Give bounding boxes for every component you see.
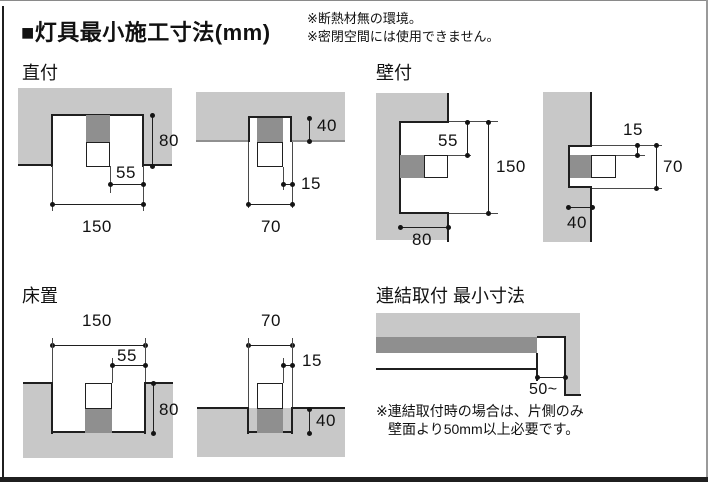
fixture-diffuser-bottom-outline (376, 368, 537, 370)
catalog-dimension-panel: ■灯具最小施工寸法(mm) ※断熱材無の環境。 ※密閉空間には使用できません。 … (0, 0, 708, 482)
ceiling-slab (376, 313, 580, 337)
side-wall (565, 337, 580, 395)
wall-face-outline (564, 336, 566, 396)
wall-bottom-outline (564, 394, 581, 396)
ceiling-edge-outline (537, 336, 565, 338)
dim-label-clearance: 50~ (529, 382, 558, 398)
linked-mount-note-1: ※連結取付時の場合は、片側のみ (376, 402, 584, 420)
dim-dot (563, 375, 568, 380)
dim-line-clearance (537, 377, 565, 378)
dim-dot (535, 375, 540, 380)
linked-mount-note-2: 壁面より50mm以上必要です。 (388, 420, 579, 438)
diagram-linked-mount: 50~ ※連結取付時の場合は、片側のみ 壁面より50mm以上必要です。 (0, 0, 708, 482)
fixture-body (376, 337, 537, 353)
